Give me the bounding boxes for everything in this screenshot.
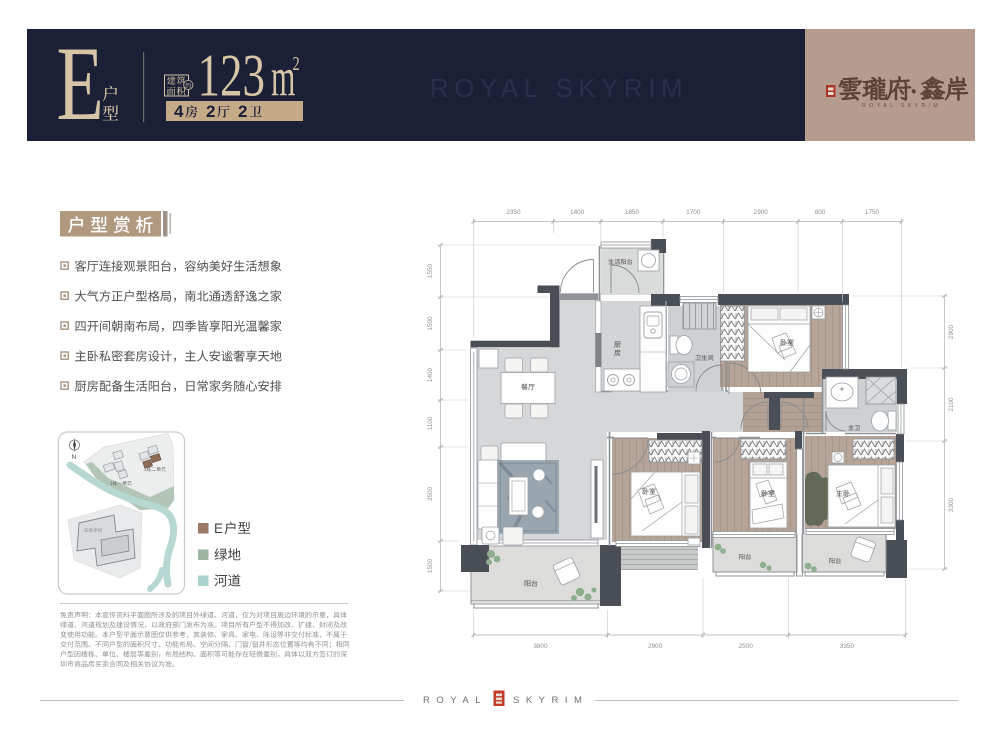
- svg-text:ROYAL SKYRIM: ROYAL SKYRIM: [862, 103, 941, 109]
- svg-text:1500: 1500: [427, 558, 434, 573]
- svg-text:3800: 3800: [533, 643, 548, 650]
- svg-text:1750: 1750: [865, 209, 880, 216]
- svg-text:3500: 3500: [427, 486, 434, 501]
- svg-text:1100: 1100: [427, 416, 434, 430]
- svg-text:E: E: [57, 25, 104, 143]
- svg-text:2350: 2350: [506, 209, 521, 216]
- svg-text:1550: 1550: [427, 263, 434, 278]
- svg-text:4: 4: [174, 102, 184, 121]
- svg-text:N: N: [72, 454, 77, 461]
- svg-text:3300: 3300: [948, 497, 955, 512]
- svg-text:2900: 2900: [648, 643, 663, 650]
- svg-text:2900: 2900: [754, 209, 769, 216]
- svg-text:123: 123: [198, 43, 265, 109]
- svg-text:2: 2: [238, 102, 247, 121]
- svg-text:2900: 2900: [948, 324, 955, 339]
- svg-text:m: m: [271, 48, 295, 108]
- svg-text:1400: 1400: [427, 367, 434, 382]
- svg-text:600: 600: [815, 209, 826, 216]
- svg-text:SKYRIM: SKYRIM: [513, 695, 588, 706]
- svg-text:2500: 2500: [739, 643, 754, 650]
- svg-text:1400: 1400: [570, 209, 585, 216]
- svg-text:ROYAL: ROYAL: [423, 695, 487, 706]
- svg-text:2100: 2100: [948, 397, 955, 412]
- svg-text:2: 2: [293, 52, 300, 75]
- svg-text:3350: 3350: [840, 643, 855, 650]
- svg-text:2: 2: [206, 102, 215, 121]
- svg-text:1700: 1700: [686, 209, 701, 216]
- svg-text:E: E: [214, 521, 223, 536]
- svg-text:1500: 1500: [427, 316, 434, 331]
- svg-text:1850: 1850: [625, 209, 640, 216]
- svg-text:ROYAL SKYRIM: ROYAL SKYRIM: [430, 73, 688, 103]
